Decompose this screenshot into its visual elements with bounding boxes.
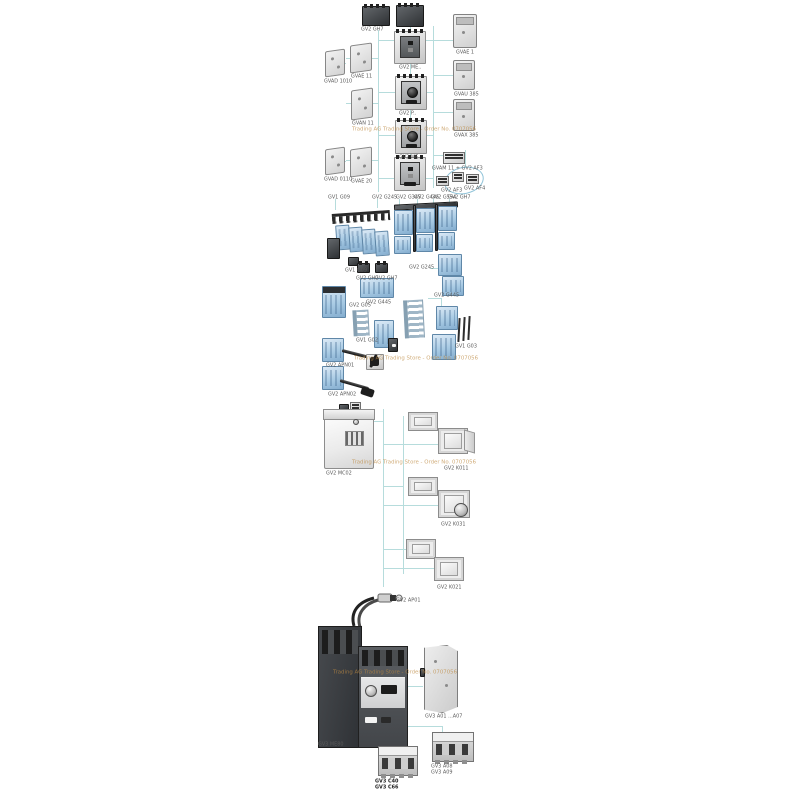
- connector-line: [383, 505, 438, 506]
- part-label: GVAD 0110: [324, 177, 352, 182]
- block-top: [379, 747, 417, 756]
- stop-button: [408, 174, 413, 178]
- terminal-block-module: [396, 5, 424, 27]
- adapter-block: [443, 152, 465, 164]
- rotary-dial: [407, 87, 418, 98]
- connector-line: [433, 26, 434, 188]
- side-mount-module: [453, 14, 477, 48]
- part-label: GV2 ME..: [399, 65, 421, 70]
- door-plate: [406, 539, 436, 559]
- aux-contact-plate: [350, 146, 372, 177]
- breaker-on-busbar: [394, 210, 413, 235]
- vertical-link-comb: [352, 310, 369, 337]
- rotary-handle-head: [360, 386, 375, 398]
- motor-breaker-gv2-rotary: [395, 76, 427, 110]
- vertical-link-comb: [403, 300, 425, 339]
- gv3-breaker-body: [318, 626, 362, 748]
- connector-line: [406, 686, 423, 687]
- plate-window: [444, 433, 462, 449]
- adapter-block: [452, 172, 464, 182]
- enclosure-button: [353, 419, 359, 425]
- part-label: GV2 G445: [366, 300, 391, 305]
- part-label: GV2 APN01: [326, 363, 354, 368]
- adapter-block: [436, 176, 449, 186]
- start-button: [408, 41, 413, 45]
- part-label: GV2 GH7: [375, 276, 398, 281]
- part-label: GVAE 1: [456, 50, 474, 55]
- breaker-on-busbar: [438, 206, 457, 231]
- gv3-terminal-block: [432, 732, 474, 762]
- adapter-block: [466, 174, 479, 184]
- door-plate: [434, 557, 464, 581]
- terminal-teeth-icon: [396, 29, 424, 33]
- plate-window: [440, 562, 458, 576]
- stop-button: [408, 48, 413, 52]
- coupling-link: [388, 338, 398, 352]
- aux-contact-plate: [350, 42, 372, 73]
- part-label: GVAD 1010: [324, 79, 352, 84]
- connector-line: [403, 416, 404, 574]
- door-plate: [408, 412, 438, 431]
- setting-window: [406, 100, 417, 104]
- setting-window: [404, 182, 416, 186]
- breaker-front: [400, 36, 420, 58]
- watermark: Trading AG Trading Store - Order No. 070…: [354, 355, 478, 361]
- part-label: GV2 AF4: [464, 186, 485, 191]
- part-label: GV2 K031: [441, 522, 465, 527]
- breaker-on-busbar: [438, 232, 455, 250]
- terminal-teeth-icon: [377, 261, 386, 265]
- part-label: GV1 G09: [328, 195, 350, 200]
- door-plate-with-cover: [438, 428, 468, 454]
- busbar-comb: [332, 210, 391, 224]
- connector-line: [383, 549, 406, 550]
- breaker-on-busbar: [374, 231, 390, 257]
- side-mount-module: [453, 60, 475, 90]
- rotary-dial: [407, 131, 418, 142]
- part-label: GV2 G245: [409, 265, 434, 270]
- gv3-terminal-slots: [322, 630, 358, 654]
- part-label: GV1 G03: [455, 344, 477, 349]
- part-label: GV3 A01 ...A07: [425, 714, 462, 719]
- door-plate: [408, 477, 438, 496]
- terminal-teeth-icon: [397, 118, 425, 122]
- plate-window: [412, 544, 430, 554]
- breaker-on-busbar: [394, 236, 411, 254]
- connector-line: [374, 421, 383, 422]
- aux-contact-plate: [325, 49, 345, 78]
- block-slots: [382, 758, 414, 769]
- part-label: GV2 GH7: [448, 195, 471, 200]
- module-cap: [456, 102, 472, 110]
- module-cap: [456, 17, 474, 25]
- breaker-stack: [438, 254, 462, 276]
- breaker-unit: [322, 286, 346, 318]
- door-rotary-knob: [454, 503, 468, 517]
- gv3-marker: [365, 717, 377, 723]
- part-label: GV3 ME80: [318, 742, 343, 747]
- connector-line: [441, 298, 442, 306]
- breaker-on-busbar: [416, 234, 433, 252]
- terminal-clamp-module: [362, 6, 390, 26]
- part-label: GV2 GH7: [361, 27, 384, 32]
- breaker-on-busbar: [416, 208, 435, 233]
- gv3-setting-dial: [365, 685, 377, 697]
- aux-contact-plate: [351, 87, 373, 120]
- setting-window: [406, 144, 417, 148]
- gv3-terminal-slots: [362, 650, 404, 666]
- part-label: GV2 ME..: [399, 155, 421, 160]
- part-label: GVAX 385: [454, 133, 479, 138]
- cable-gland: [340, 584, 410, 628]
- part-label: GVAU 385: [454, 92, 479, 97]
- link-pin: [462, 317, 465, 341]
- terminal-teeth-icon: [359, 261, 368, 265]
- part-label: GV2 P..: [399, 111, 416, 116]
- watermark: Trading AG Trading Store - Order No. 070…: [352, 126, 476, 132]
- connector-line: [378, 30, 379, 192]
- terminal-teeth-icon: [364, 4, 388, 8]
- plate-window: [414, 482, 432, 491]
- part-label: GV3 C66: [375, 785, 398, 790]
- part-label: GV2 G445: [434, 293, 459, 298]
- breaker-cap: [323, 287, 345, 293]
- enclosure-lid: [323, 409, 375, 420]
- part-label: GVAM 11 + GV2 AF3: [432, 166, 483, 171]
- connector-line: [433, 155, 443, 156]
- connector-line: [383, 444, 438, 445]
- part-label: GV2 K011: [444, 466, 468, 471]
- connector-line: [383, 409, 384, 587]
- supply-end-block: [327, 238, 340, 259]
- busbar-adapter: [375, 263, 388, 273]
- connector-line: [433, 75, 453, 76]
- gv3-rating-window: [381, 685, 397, 694]
- diagram-canvas: GV2 GH7 GV1 A01 GV2 ME.. GV2 P.. GV2 ME.…: [0, 0, 800, 800]
- connector-line: [377, 199, 378, 208]
- door-plate-with-knob: [438, 490, 470, 518]
- part-label: GV1 G02: [356, 338, 378, 343]
- plate-window: [414, 417, 432, 426]
- gv3-breaker-front: [358, 646, 408, 748]
- breaker-unit: [322, 366, 344, 390]
- connector-line: [383, 568, 434, 569]
- aux-contact-plate: [325, 147, 345, 176]
- motor-breaker-gv2: [394, 31, 426, 64]
- connector-line: [433, 112, 453, 113]
- terminal-teeth-icon: [397, 74, 425, 78]
- enclosure-louver-window: [345, 431, 364, 446]
- connector-line: [433, 40, 453, 41]
- part-label: GVAE 11: [351, 74, 372, 79]
- gv3-marker: [381, 717, 391, 723]
- module-cap: [456, 63, 472, 71]
- terminal-teeth-icon: [398, 3, 422, 7]
- connector-line: [335, 199, 336, 210]
- part-label: GV2 K021: [437, 585, 461, 590]
- breaker-unit: [322, 338, 344, 362]
- part-label: GV2 AP01: [396, 598, 420, 603]
- link-pin: [467, 316, 470, 340]
- part-label: GV2 AF3: [441, 188, 462, 193]
- gv3-side-plate: [424, 645, 458, 713]
- block-slots: [436, 744, 470, 755]
- link-pin: [457, 318, 460, 342]
- part-label: GVAE 20: [351, 179, 372, 184]
- part-label: GV2 MC02: [326, 471, 352, 476]
- watermark: Trading AG Trading Store - Order No. 070…: [333, 669, 457, 675]
- watermark: Trading AG Trading Store - Order No. 070…: [352, 459, 476, 465]
- open-cover: [464, 429, 475, 453]
- motor-breaker-gv2-pushbutton: [394, 157, 426, 191]
- part-label: GV2 G245: [372, 195, 397, 200]
- start-button: [408, 167, 413, 171]
- connector-line: [383, 486, 403, 487]
- breaker-unit: [436, 306, 458, 330]
- block-top: [433, 733, 473, 742]
- part-label: GV2 APN02: [328, 392, 356, 397]
- gv3-terminal-block: [378, 746, 418, 776]
- part-label: GV1 G09: [345, 268, 367, 273]
- part-label: GV3 A09: [431, 770, 452, 775]
